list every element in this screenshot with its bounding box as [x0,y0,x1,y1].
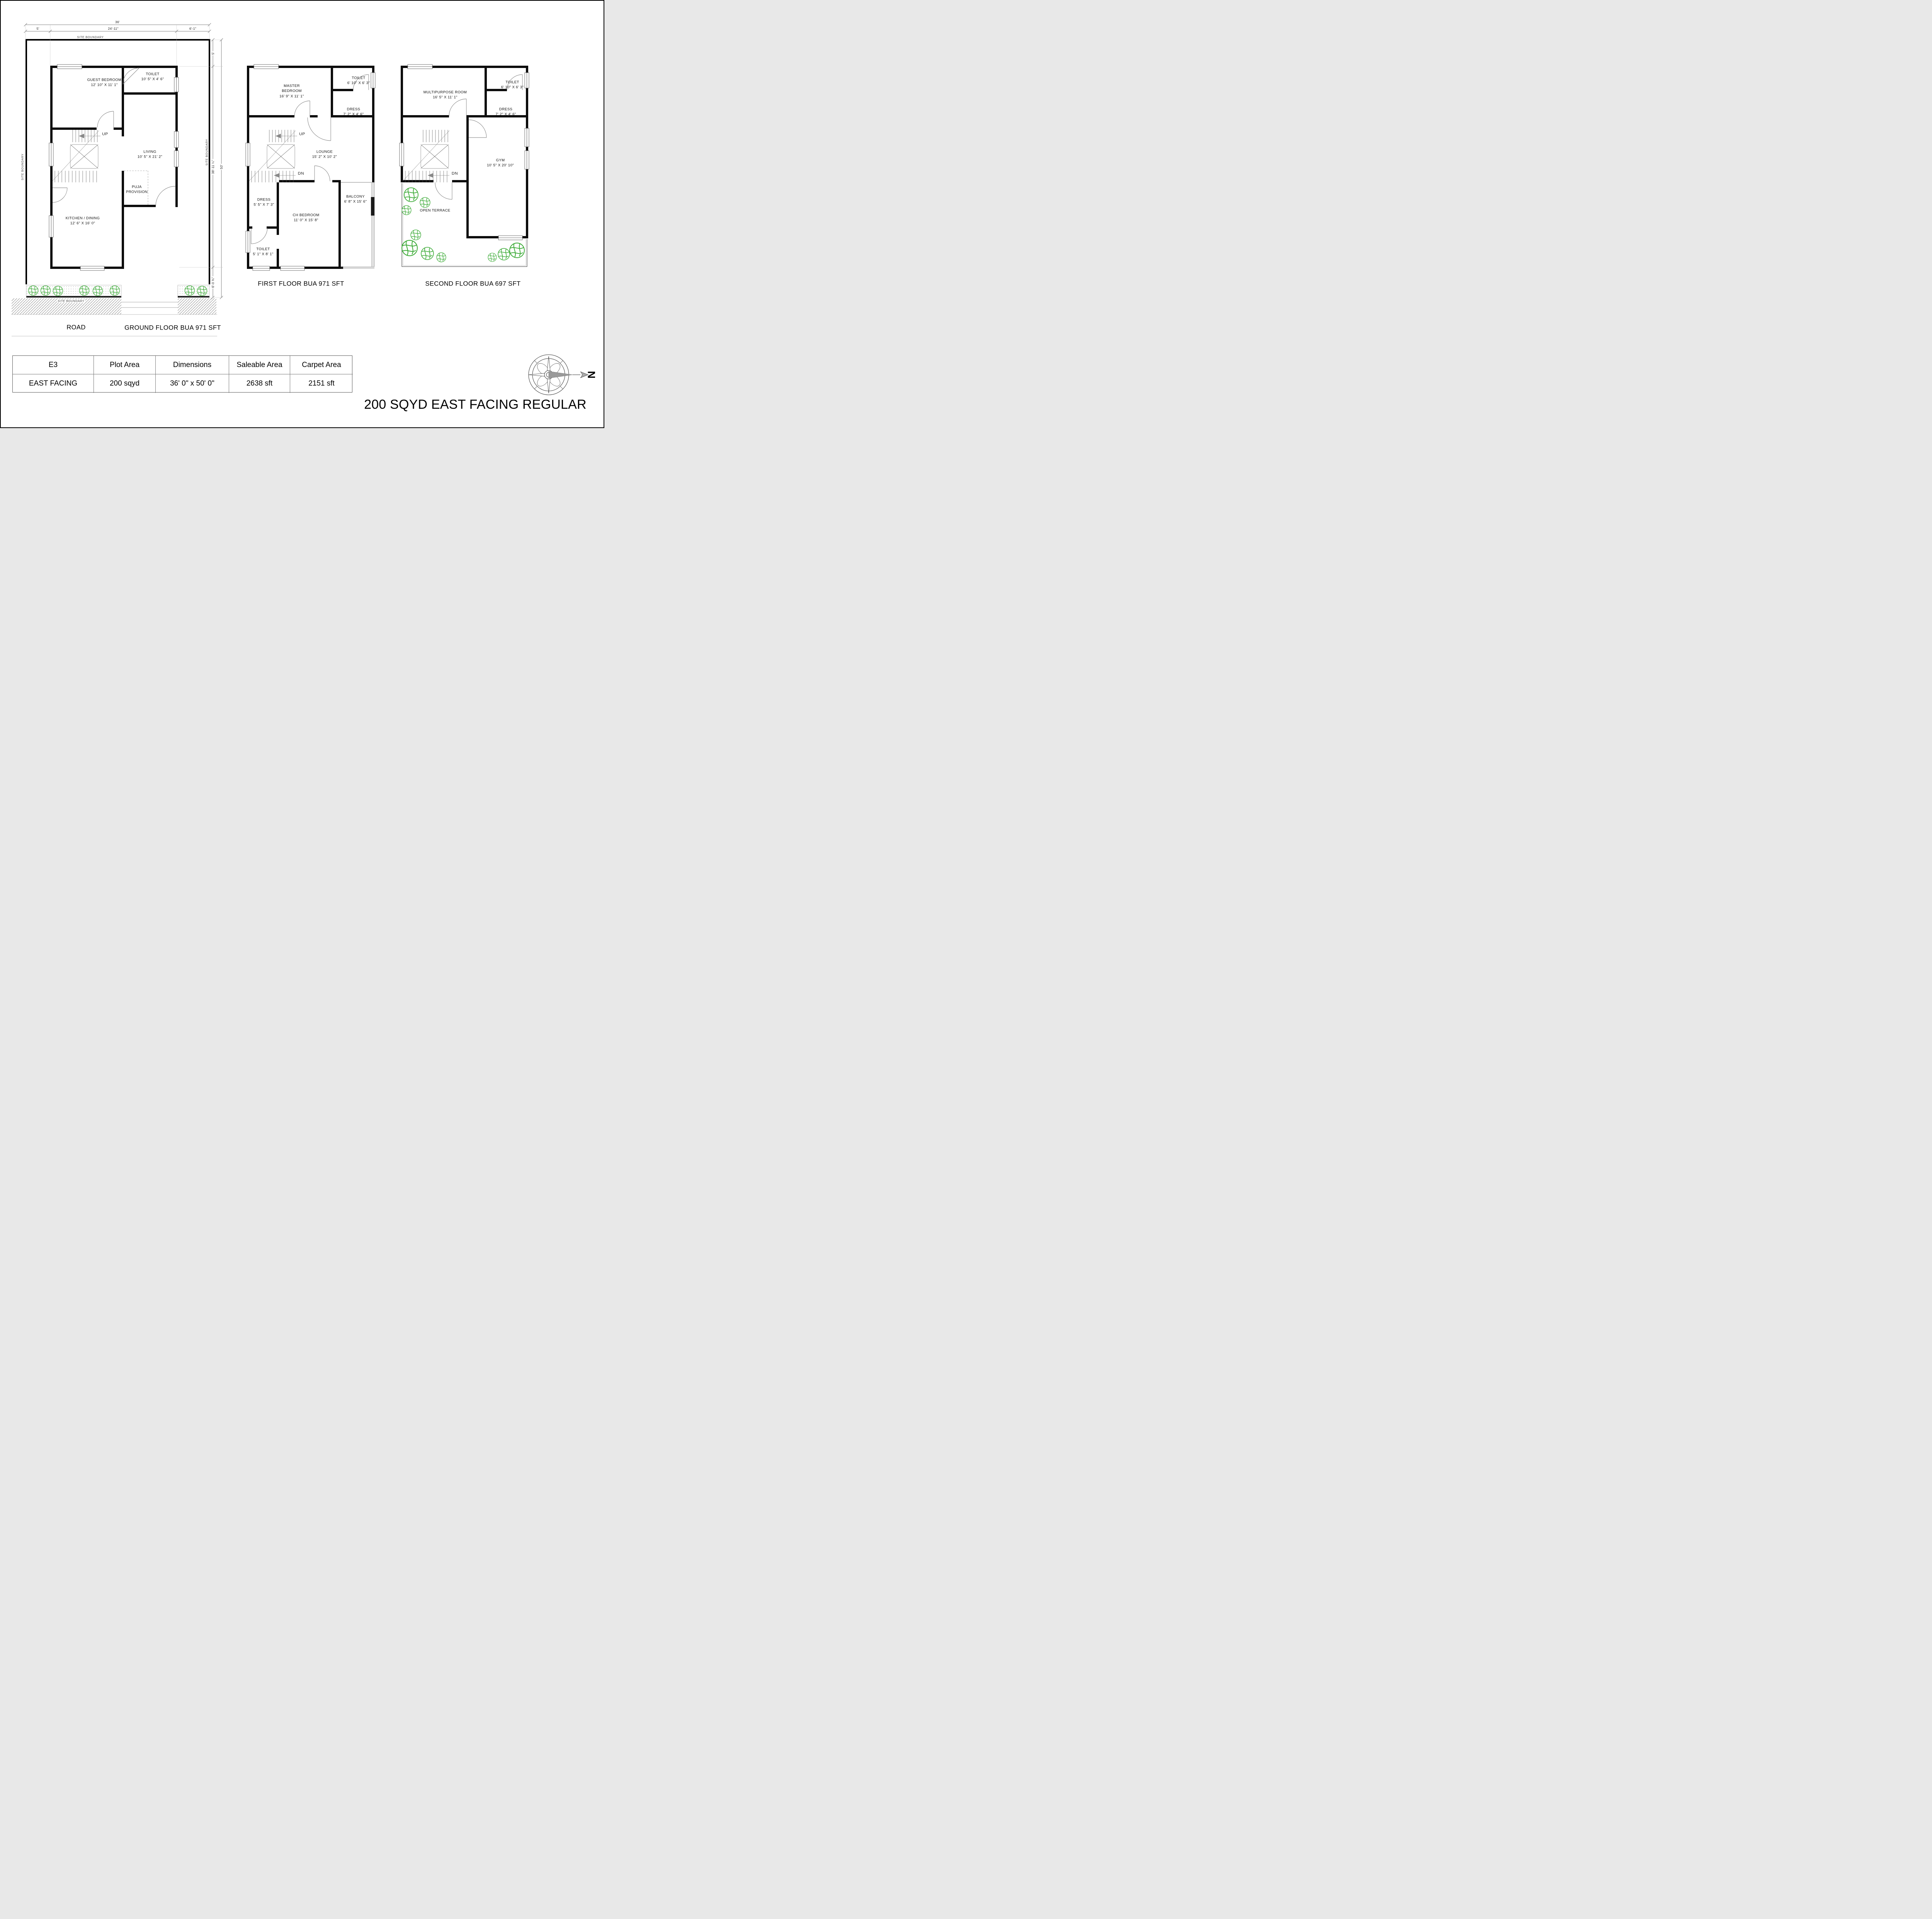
second-terrace-trees [402,188,524,262]
room-size: 16' 5" X 11' 1" [423,95,467,100]
room-name: MULTIPURPOSE ROOM [423,90,467,95]
room-name: LOUNGE [312,150,337,155]
table-header-plot-area: Plot Area [94,356,156,374]
dim-left-margin: 5' [36,27,40,31]
room-label-puja: PUJA PROVISION [124,185,149,195]
first-walls [247,66,374,269]
road-label: ROAD [66,324,85,331]
table-header-saleable-area: Saleable Area [229,356,290,374]
room-name: GUEST BEDROOM [87,78,122,83]
table-value-saleable-area: 2638 sft [229,374,290,393]
second-terrace-boundary [402,183,527,267]
room-name: DRESS [496,107,516,112]
room-label-ch-bedroom: CH BEDROOM 11' 0" X 15' 8" [293,213,320,223]
second-stairs [403,130,449,182]
dim-bottom-margin: 6'-0 ¾" [211,276,215,289]
room-size: 12' 10" X 11' 1" [87,83,122,88]
table-value-facing: EAST FACING [13,374,94,393]
room-size: 5' 1" X 8' 1" [253,252,274,257]
room-label-multipurpose: MULTIPURPOSE ROOM 16' 5" X 11' 1" [423,90,467,100]
dim-top-margin: 5' [211,51,215,56]
room-name: TOILET [347,76,370,81]
page-title: 200 SQYD EAST FACING REGULAR [349,397,601,412]
room-name: GYM [487,158,514,163]
room-label-second-toilet: TOILET 6' 10" X 6' 3" [501,80,524,90]
stairs-dn-label-first: DN [298,171,304,176]
room-size: 16' 9" X 11' 1" [276,94,308,99]
first-stairs [249,130,297,182]
table-value-plot-area: 200 sqyd [94,374,156,393]
room-label-gym: GYM 10' 5" X 20' 10" [487,158,514,168]
room-name: LIVING [138,150,162,155]
dim-building-depth: 38'-11 ¼" [211,159,215,175]
stairs-up-label-first: UP [299,132,305,136]
room-name: TOILET [501,80,524,85]
plot-info-table: E3 Plot Area Dimensions Saleable Area Ca… [12,355,352,393]
room-label-lounge: LOUNGE 15' 2" X 10' 2" [312,150,337,160]
table-value-dimensions: 36' 0" x 50' 0" [156,374,229,393]
ground-walls [50,66,178,269]
room-label-kitchen: KITCHEN / DINING 12' 6" X 16' 0" [66,216,100,226]
room-label-guest-bedroom: GUEST BEDROOM 12' 10" X 11' 1" [87,78,122,88]
table-header-dimensions: Dimensions [156,356,229,374]
ground-stairs [53,130,100,182]
room-label-ground-toilet: TOILET 10' 5" X 4' 6" [141,72,164,82]
dim-total-depth: 50' [219,164,223,170]
second-floor-caption: SECOND FLOOR BUA 697 SFT [425,280,520,288]
room-size: 12' 6" X 16' 0" [66,221,100,226]
room-size: 15' 2" X 10' 2" [312,155,337,160]
room-label-open-terrace: OPEN TERRACE [420,208,451,213]
room-name: OPEN TERRACE [420,208,451,213]
stairs-dn-label-second: DN [452,171,458,176]
dim-building-width: 24'-11" [107,27,119,31]
room-size: 5' 5" X 7' 3" [254,202,274,207]
stairs-up-label-ground: UP [102,132,108,136]
table-header-code: E3 [13,356,94,374]
room-size: 10' 5" X 20' 10" [487,163,514,168]
room-name: MASTER BEDROOM [276,83,308,94]
room-size: 6' 8" X 15' 6" [344,199,367,204]
room-name: KITCHEN / DINING [66,216,100,221]
table-value-carpet-area: 2151 sft [290,374,353,393]
room-size: 10' 5" X 4' 6" [141,77,164,82]
first-windows [246,65,375,270]
room-label-living: LIVING 10' 5" X 21' 2" [138,150,162,160]
site-boundary-label-top: SITE BOUNDARY [77,36,105,39]
room-name: DRESS [344,107,364,112]
room-name: CH BEDROOM [293,213,320,218]
room-label-first-dress-top: DRESS 7' 2" X 4' 6" [344,107,364,117]
room-label-balcony: BALCONY 6' 8" X 15' 6" [344,194,367,205]
ground-windows [49,65,179,270]
room-size: 7' 2" X 4' 6" [344,112,364,117]
room-size: 6' 10" X 6' 3" [347,81,370,86]
room-size: 7' 2" X 4' 6" [496,112,516,117]
room-name: BALCONY [344,194,367,199]
room-size: 6' 10" X 6' 3" [501,85,524,90]
room-name: TOILET [141,72,164,77]
dim-total-width: 36' [114,20,121,24]
room-label-first-toilet-bottom: TOILET 5' 1" X 8' 1" [253,247,274,257]
first-toilet-door-gap [277,235,279,249]
room-size: 11' 0" X 15' 8" [293,218,320,223]
room-name: TOILET [253,247,274,252]
site-boundary-label-right: SITE BOUNDARY [205,138,209,167]
site-boundary-label-left: SITE BOUNDARY [21,153,24,181]
floor-plan-sheet: 36' 5' 24'-11" 6'-1" 5' 38'-11 ¼" 50' 6'… [0,0,604,428]
room-name: PUJA PROVISION [124,185,149,195]
site-boundary-label-bottom: SITE BOUNDARY [57,299,85,303]
room-label-first-toilet-top: TOILET 6' 10" X 6' 3" [347,76,370,86]
ground-landscape [26,285,209,296]
compass-rose [529,355,588,395]
room-label-first-dress-mid: DRESS 5' 5" X 7' 3" [254,197,274,208]
room-label-second-dress: DRESS 7' 2" X 4' 6" [496,107,516,117]
first-floor-caption: FIRST FLOOR BUA 971 SFT [258,280,344,288]
ground-floor-caption: GROUND FLOOR BUA 971 SFT [124,325,221,332]
room-name: DRESS [254,197,274,202]
room-label-master-bedroom: MASTER BEDROOM 16' 9" X 11' 1" [276,83,308,99]
ground-doors [53,68,175,206]
dim-right-margin: 6'-1" [189,27,197,31]
room-size: 10' 5" X 21' 2" [138,155,162,160]
compass-north-label: N [585,371,597,379]
table-header-carpet-area: Carpet Area [290,356,353,374]
